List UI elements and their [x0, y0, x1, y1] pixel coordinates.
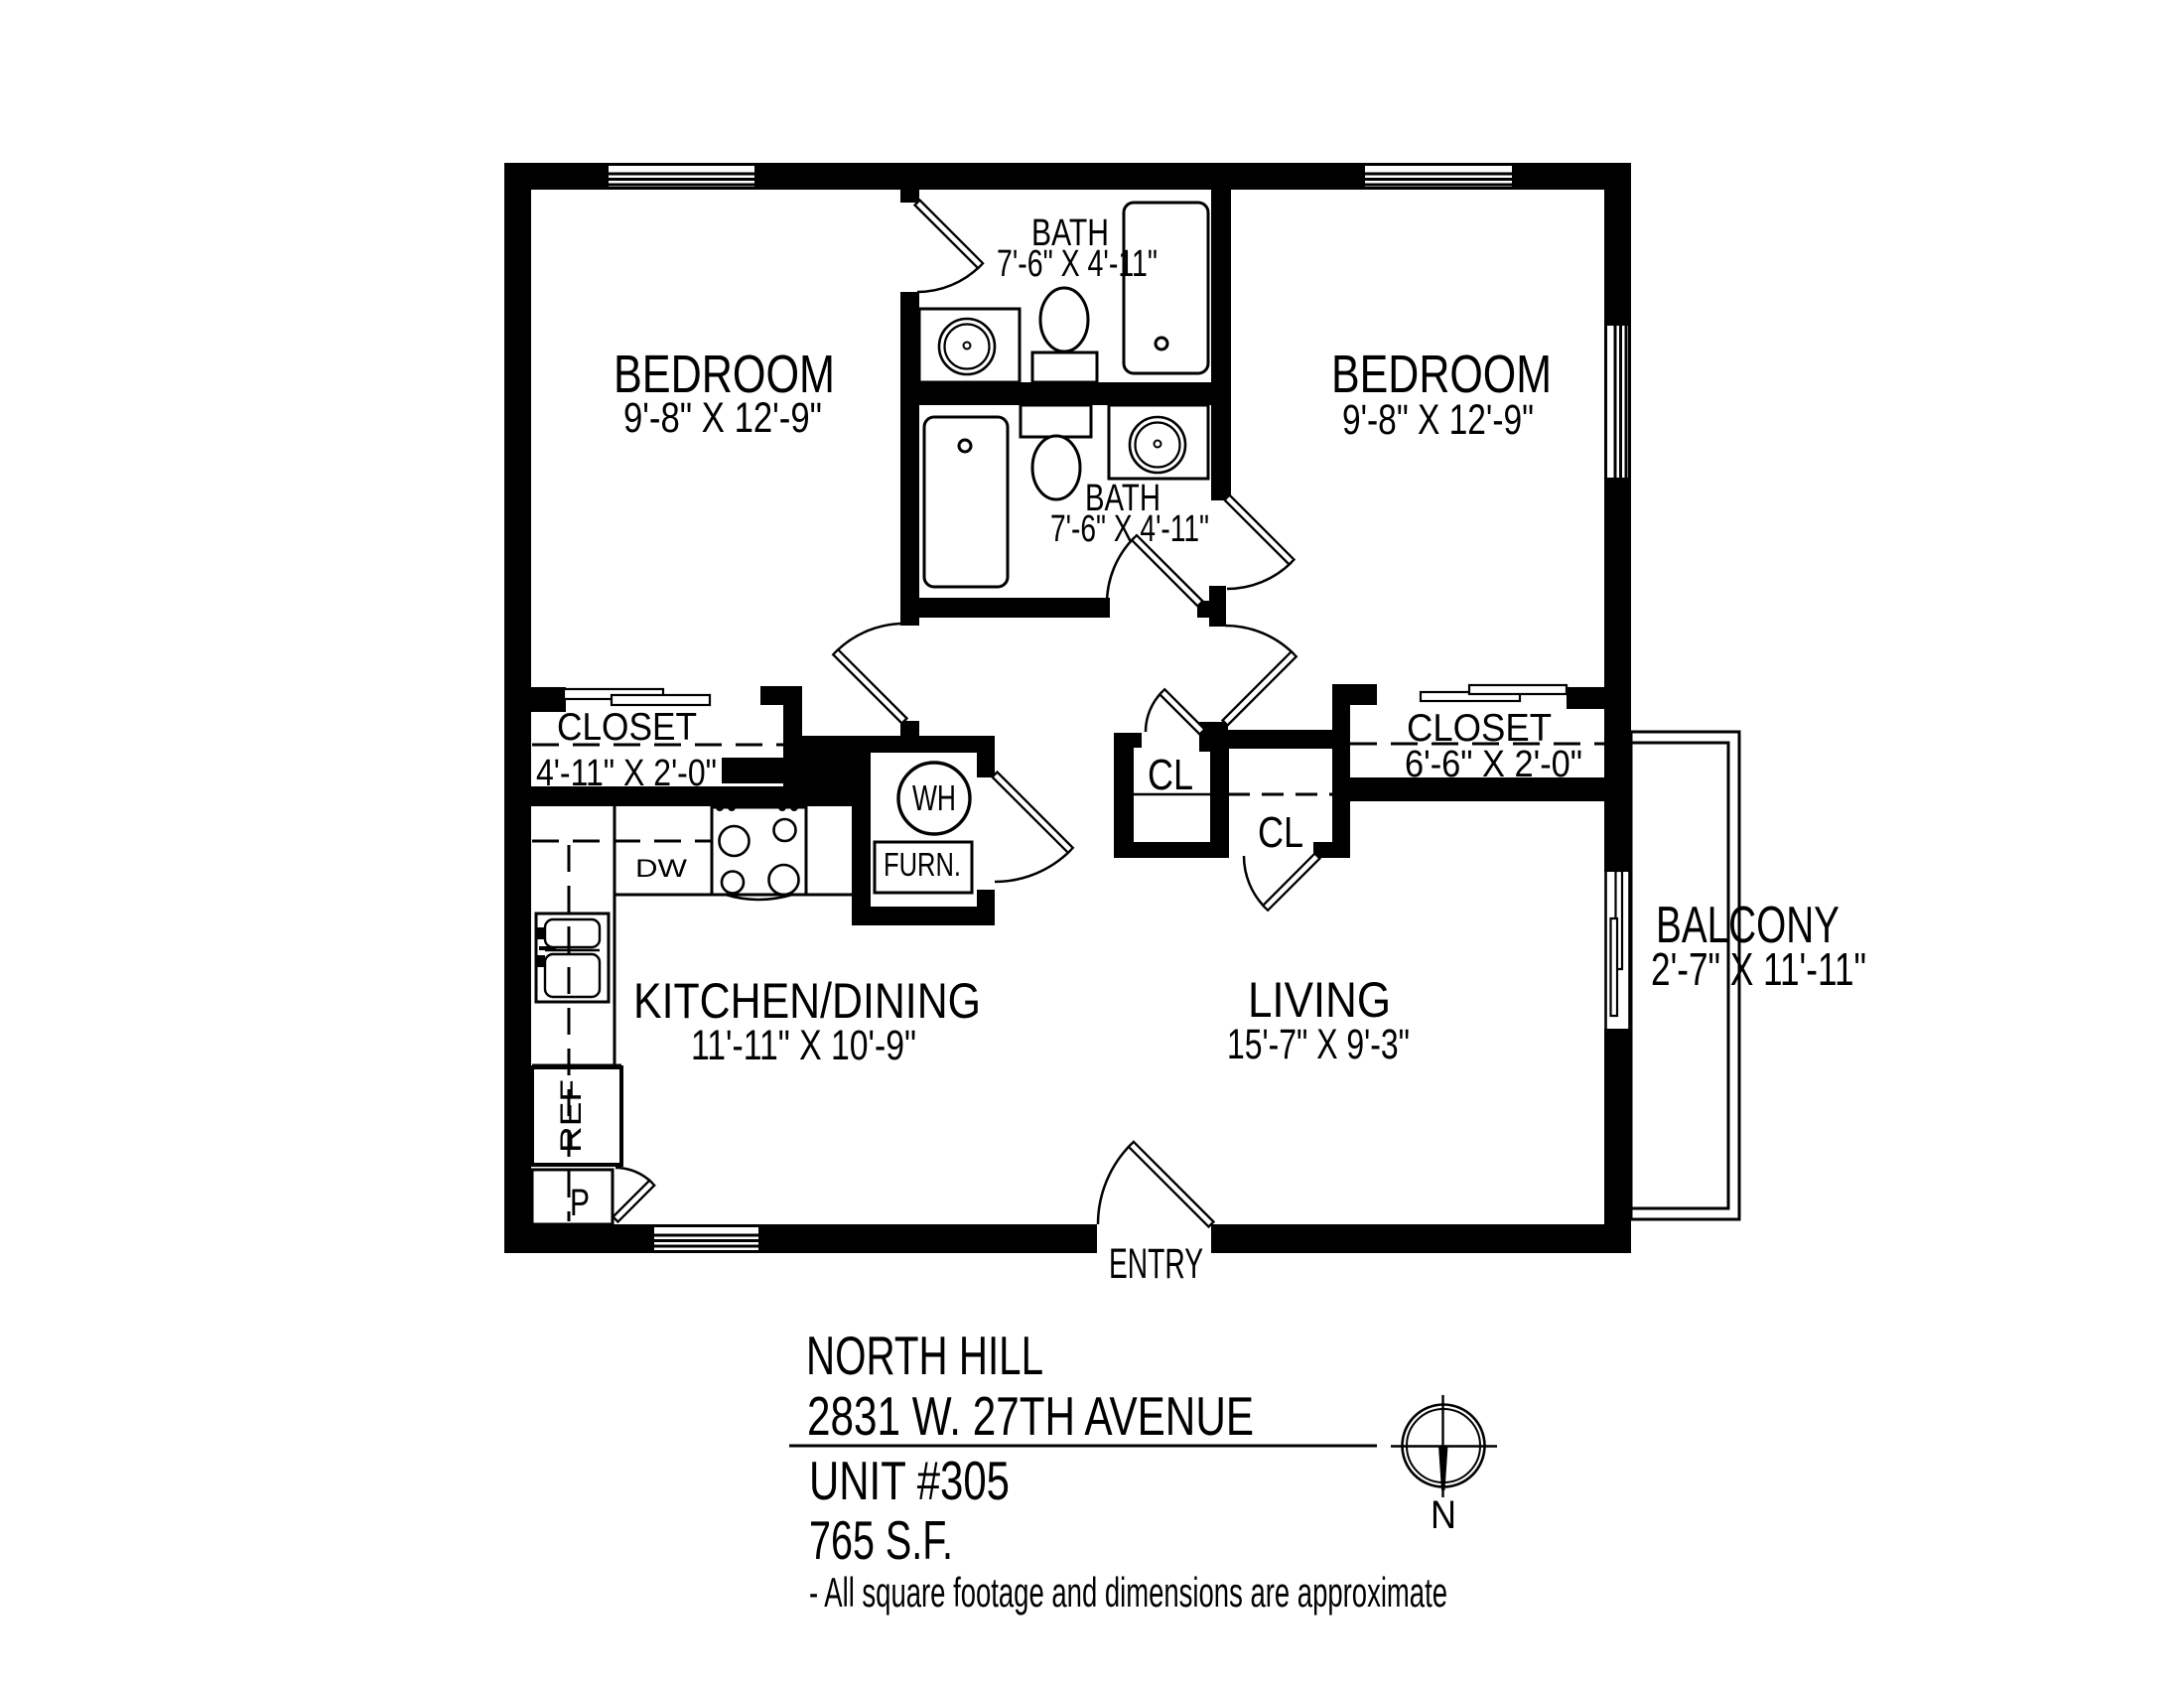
- svg-text:ENTRY: ENTRY: [1109, 1240, 1203, 1288]
- svg-text:15'-7" X 9'-3": 15'-7" X 9'-3": [1227, 1021, 1410, 1068]
- svg-text:DW: DW: [635, 855, 687, 883]
- svg-text:UNIT #305: UNIT #305: [809, 1450, 1010, 1511]
- svg-text:N: N: [1431, 1493, 1456, 1537]
- svg-text:9'-8" X 12'-9": 9'-8" X 12'-9": [623, 394, 822, 442]
- svg-text:FURN.: FURN.: [884, 846, 961, 883]
- svg-text:LIVING: LIVING: [1248, 972, 1391, 1028]
- svg-text:NORTH HILL: NORTH HILL: [806, 1325, 1043, 1386]
- svg-text:KITCHEN/DINING: KITCHEN/DINING: [633, 973, 981, 1029]
- svg-text:CLOSET: CLOSET: [557, 706, 697, 749]
- svg-text:7'-6" X 4'-11": 7'-6" X 4'-11": [997, 243, 1158, 285]
- svg-text:BEDROOM: BEDROOM: [1331, 345, 1552, 404]
- svg-text:WH: WH: [912, 777, 956, 818]
- svg-text:6'-6" X 2'-0": 6'-6" X 2'-0": [1405, 744, 1582, 785]
- svg-text:2831 W. 27TH AVENUE: 2831 W. 27TH AVENUE: [807, 1385, 1254, 1447]
- svg-text:- All square footage and dimen: - All square footage and dimensions are …: [809, 1569, 1447, 1616]
- svg-text:CL: CL: [1258, 808, 1303, 857]
- svg-text:7'-6" X 4'-11": 7'-6" X 4'-11": [1050, 508, 1209, 550]
- svg-text:9'-8" X 12'-9": 9'-8" X 12'-9": [1342, 396, 1534, 444]
- svg-text:765 S.F.: 765 S.F.: [809, 1509, 953, 1571]
- svg-text:11'-11" X 10'-9": 11'-11" X 10'-9": [691, 1022, 916, 1069]
- svg-text:4'-11" X 2'-0": 4'-11" X 2'-0": [536, 753, 717, 794]
- svg-text:2'-7" X 11'-11": 2'-7" X 11'-11": [1651, 943, 1866, 995]
- svg-text:P: P: [570, 1183, 590, 1224]
- svg-text:CL: CL: [1148, 751, 1193, 799]
- svg-text:REF: REF: [555, 1079, 588, 1153]
